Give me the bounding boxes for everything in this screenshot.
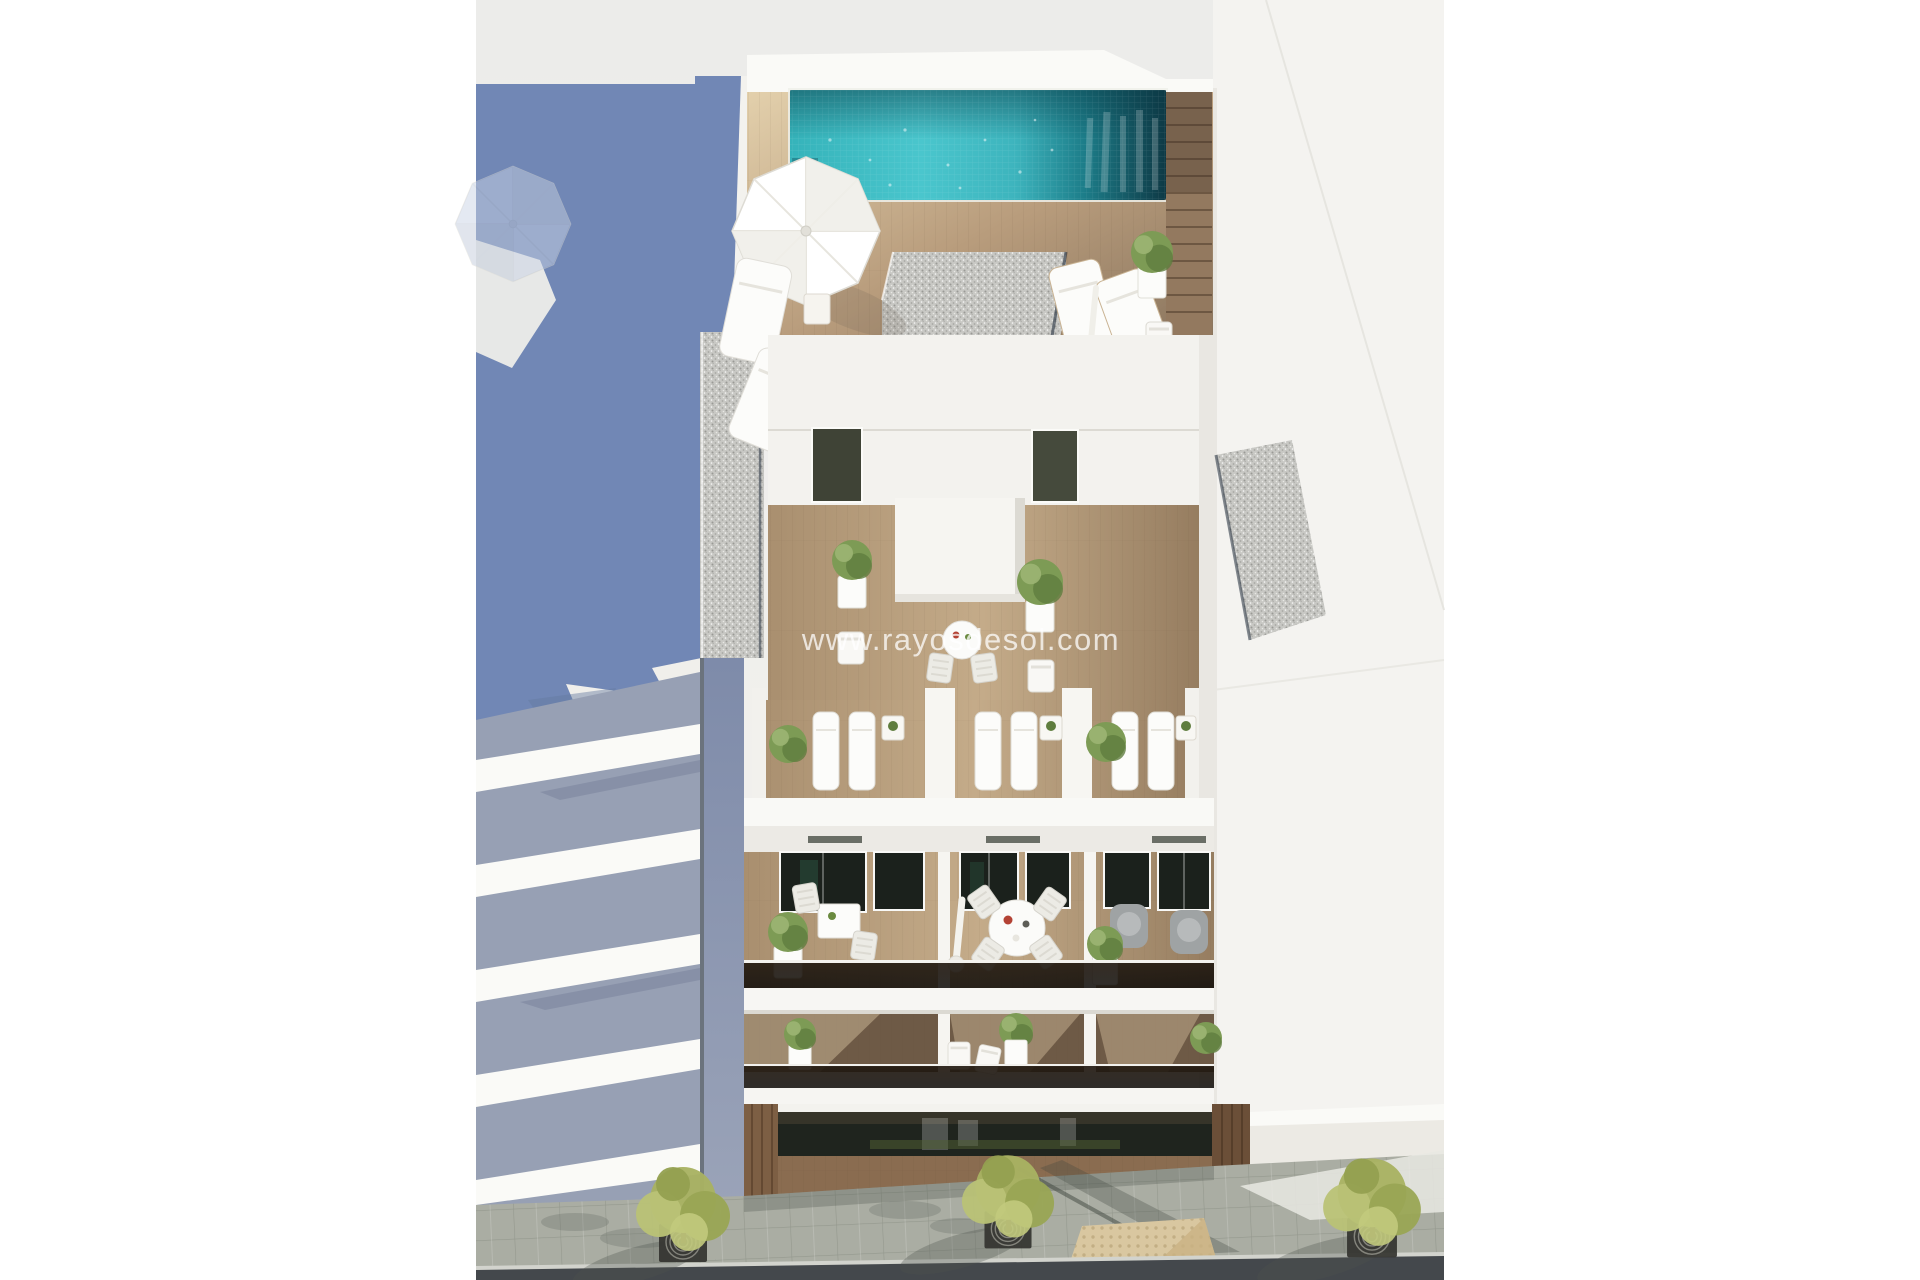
main-balcony-level bbox=[744, 852, 1214, 1014]
wicker-armchair bbox=[1170, 910, 1208, 954]
terrace-door bbox=[812, 428, 862, 502]
watermark-text: www.rayosdesol.com bbox=[801, 622, 1120, 657]
aerial-architectural-render: www.rayosdesol.com bbox=[0, 0, 1920, 1280]
terrace-door bbox=[1032, 430, 1078, 502]
building-gap-line bbox=[700, 648, 704, 1205]
entrance-door bbox=[744, 1104, 778, 1198]
glass-balustrade bbox=[744, 963, 1214, 988]
left-neighbour-building bbox=[476, 640, 744, 1205]
lounger-terrace-level bbox=[744, 688, 1214, 852]
second-balcony-level bbox=[744, 1013, 1222, 1112]
roof-stair-corridor bbox=[1166, 92, 1212, 335]
balustrade-rail bbox=[744, 960, 1214, 963]
shaded-side-wall bbox=[704, 640, 744, 1202]
render-canvas: www.rayosdesol.com bbox=[0, 0, 1920, 1280]
stair-bulkhead bbox=[895, 498, 1025, 602]
shaded-parasol bbox=[455, 166, 570, 281]
terrace-parapet bbox=[744, 798, 1214, 826]
